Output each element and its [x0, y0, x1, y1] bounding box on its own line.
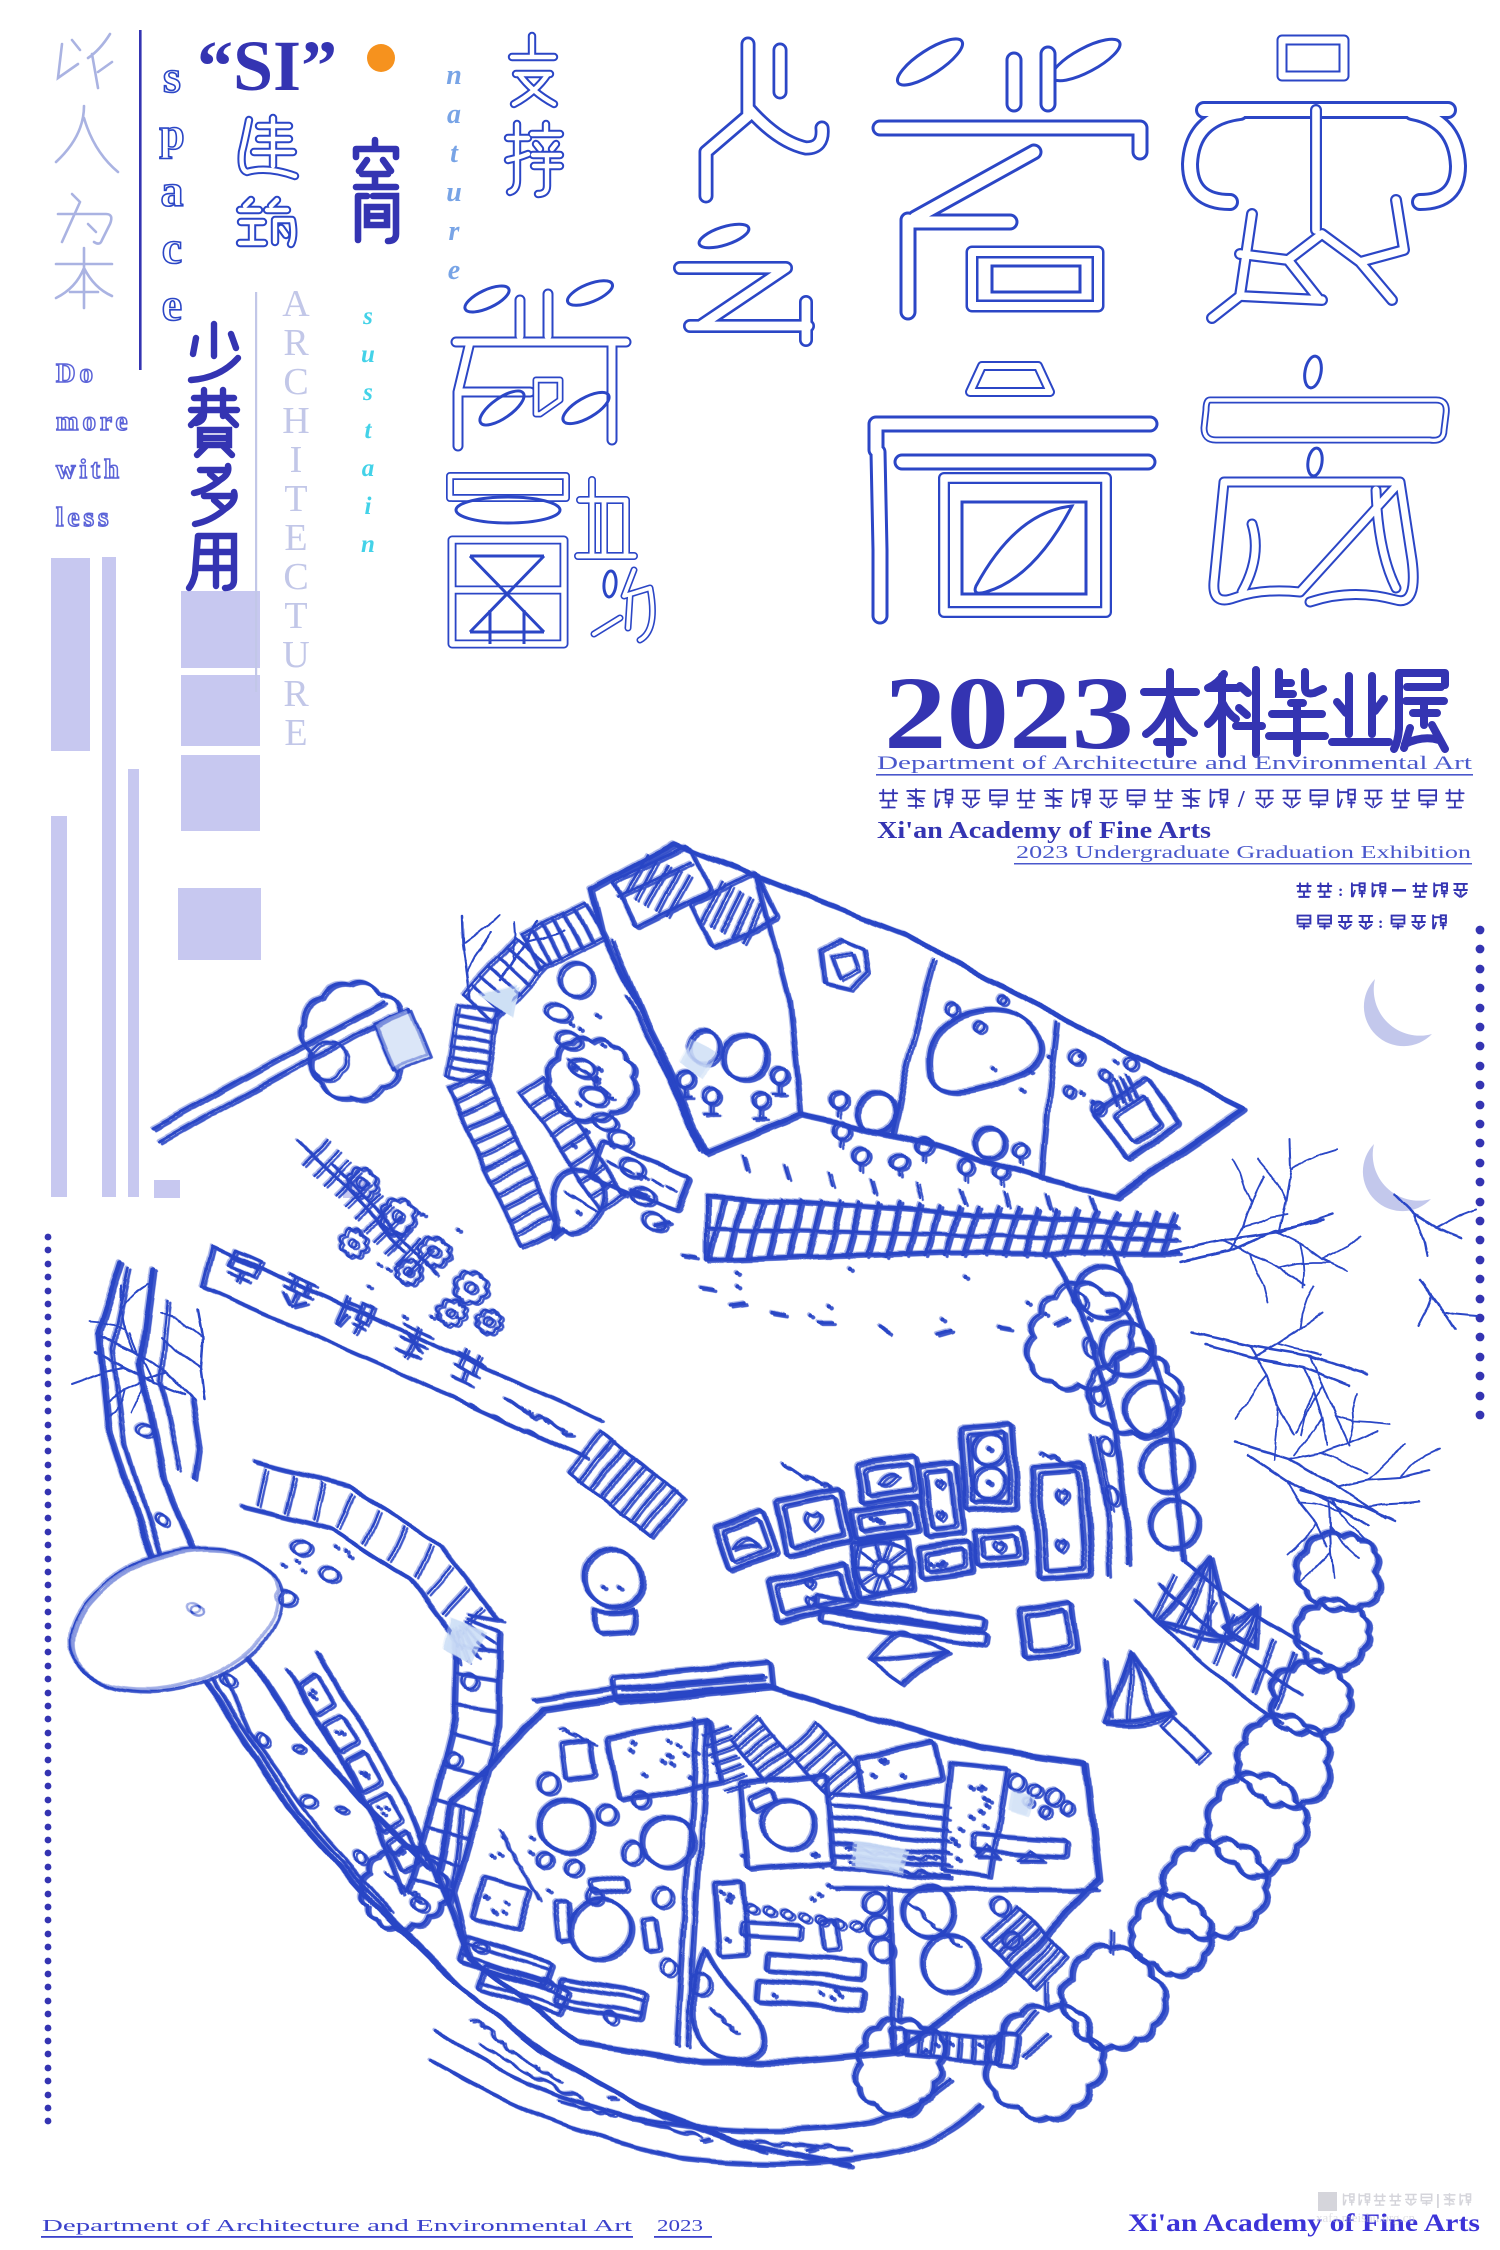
svg-text:u: u: [446, 177, 462, 208]
svg-text:C: C: [283, 361, 308, 403]
svg-text:s: s: [362, 379, 373, 406]
svg-text:R: R: [283, 322, 309, 364]
svg-text:s: s: [362, 303, 373, 330]
svg-text:A: A: [282, 283, 310, 325]
svg-text:E: E: [284, 712, 307, 754]
svg-text:Department of Architecture and: Department of Architecture and Environme…: [42, 2216, 633, 2235]
svg-text:2023 Undergraduate Graduation: 2023 Undergraduate Graduation Exhibition: [1016, 842, 1471, 862]
svg-text:i: i: [365, 493, 372, 520]
svg-text:H: H: [282, 400, 309, 442]
svg-text::: :: [1338, 883, 1343, 900]
svg-text:n: n: [446, 60, 462, 91]
svg-text:e: e: [448, 255, 460, 286]
svg-text:U: U: [282, 634, 309, 676]
svg-text:R: R: [283, 673, 309, 715]
svg-text:T: T: [284, 595, 307, 637]
svg-text:a: a: [161, 165, 184, 216]
svg-text::: :: [1378, 915, 1383, 932]
svg-text:xafa.meishu.org.cn: xafa.meishu.org.cn: [1316, 2210, 1416, 2225]
svg-text:I: I: [290, 439, 303, 481]
svg-text:p: p: [159, 108, 185, 159]
svg-text:t: t: [365, 417, 373, 444]
svg-text:u: u: [361, 341, 375, 368]
svg-text:E: E: [284, 517, 307, 559]
svg-text:C: C: [283, 556, 308, 598]
svg-text:a: a: [362, 455, 375, 482]
svg-text:Xi'an Academy of Fine Arts: Xi'an Academy of Fine Arts: [877, 818, 1211, 844]
svg-text:Department of Architecture and: Department of Architecture and Environme…: [877, 753, 1473, 774]
svg-text:with: with: [56, 454, 123, 484]
svg-text:t: t: [450, 138, 459, 169]
svg-text:e: e: [162, 279, 182, 330]
svg-text:less: less: [56, 502, 113, 532]
svg-text:c: c: [162, 222, 182, 273]
svg-text:T: T: [284, 478, 307, 520]
svg-text:Xi'an Academy of Fine Arts: Xi'an Academy of Fine Arts: [1128, 2210, 1480, 2237]
svg-text:a: a: [447, 99, 461, 130]
svg-text:n: n: [361, 531, 375, 558]
svg-text:more: more: [56, 406, 131, 436]
svg-text:s: s: [163, 51, 181, 102]
svg-text:/: /: [1237, 787, 1245, 813]
svg-text:2023: 2023: [657, 2216, 703, 2235]
svg-text:“SI”: “SI”: [197, 26, 337, 106]
svg-text:Do: Do: [56, 358, 97, 388]
svg-text:r: r: [449, 216, 461, 247]
